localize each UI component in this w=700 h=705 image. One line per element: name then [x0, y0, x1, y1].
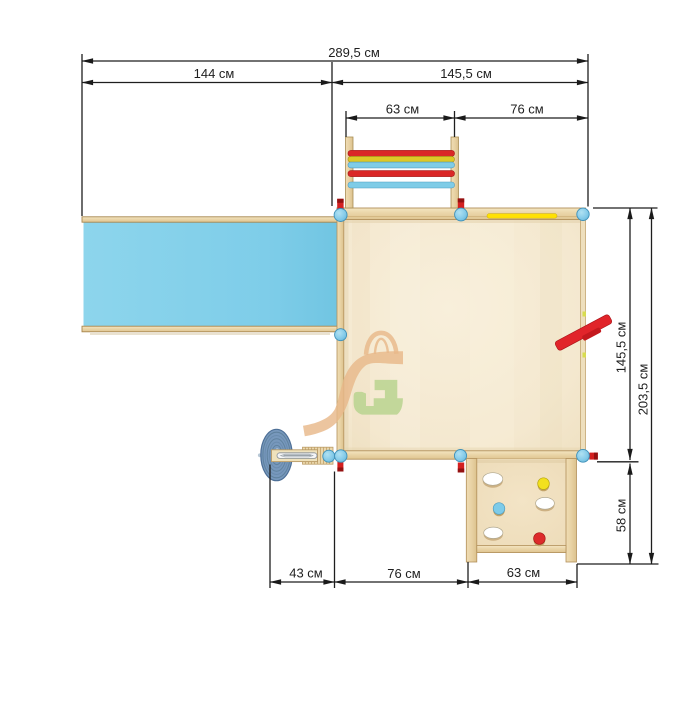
svg-text:76 см: 76 см [510, 102, 544, 117]
svg-text:144 см: 144 см [194, 66, 235, 81]
svg-text:43 см: 43 см [289, 566, 323, 581]
svg-text:203,5 см: 203,5 см [636, 364, 651, 416]
svg-text:145,5 см: 145,5 см [440, 66, 492, 81]
svg-text:58 см: 58 см [614, 499, 629, 533]
svg-text:76 см: 76 см [387, 566, 421, 581]
svg-text:63 см: 63 см [507, 565, 541, 580]
svg-text:63 см: 63 см [386, 102, 420, 117]
svg-text:145,5 см: 145,5 см [614, 322, 629, 374]
svg-text:289,5 см: 289,5 см [328, 45, 380, 60]
